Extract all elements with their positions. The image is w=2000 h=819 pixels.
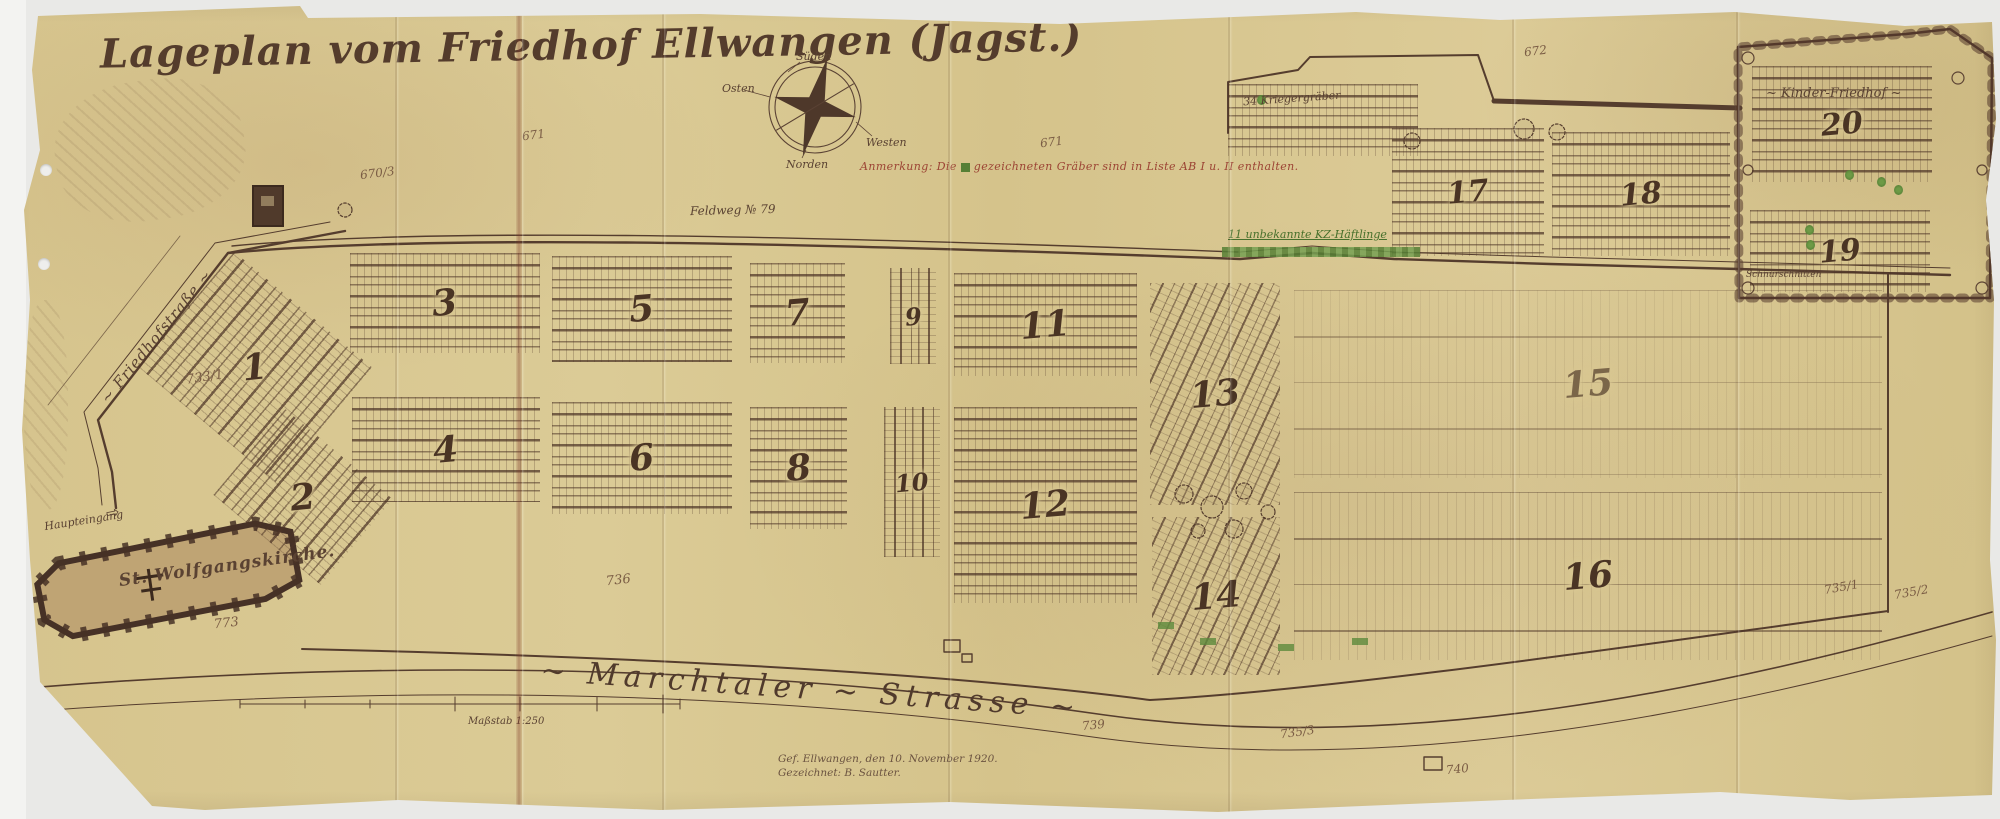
section-number: 16 (1561, 553, 1615, 599)
green-shrub (1806, 240, 1815, 250)
grave-section-7: 7 (750, 263, 845, 363)
section-number: 14 (1189, 573, 1243, 619)
green-shrub (1894, 185, 1903, 195)
note-prefix: Anmerkung: Die (860, 160, 957, 173)
grave-section-18: 18 (1552, 132, 1730, 256)
grave-section-9: 9 (890, 268, 936, 364)
scanned-map-page: 1 2 3 4 5 6 7 8 9 10 11 12 13 14 15 16 1… (0, 0, 2000, 819)
green-grave-mark (1158, 622, 1174, 629)
parcel-number: 739 (1081, 717, 1105, 733)
grave-section-20: 20 (1752, 66, 1932, 182)
signature-line2: Gezeichnet: B. Sautter. (778, 766, 998, 780)
section-number: 3 (431, 281, 460, 325)
section-number: 10 (894, 466, 930, 498)
section-number: 13 (1188, 371, 1242, 417)
grave-section-11: 11 (954, 273, 1137, 376)
grave-section-12: 12 (954, 407, 1137, 603)
parcel-number: 672 (1523, 43, 1547, 60)
kz-graves-label: 11 unbekannte KZ-Häftlinge (1228, 228, 1387, 241)
mortuary-building (253, 186, 283, 226)
grave-section-10: 10 (884, 407, 940, 557)
grave-section-14: 14 (1152, 517, 1280, 675)
signature-line1: Gef. Ellwangen, den 10. November 1920. (778, 752, 998, 766)
green-shrub (1805, 225, 1814, 235)
section-number: 6 (628, 436, 657, 480)
section-number: 5 (628, 287, 657, 331)
parcel-number: 671 (1039, 134, 1063, 151)
parcel-number: 671 (521, 127, 545, 144)
grave-section-16: 16 (1294, 492, 1882, 660)
compass-label-east: Osten (722, 82, 755, 95)
grave-section-13: 13 (1150, 283, 1280, 505)
section-number: 17 (1446, 173, 1491, 212)
kinder-friedhof-label: ~ Kinder-Friedhof ~ (1766, 86, 1901, 101)
section-number: 8 (784, 446, 813, 490)
section-number: 12 (1019, 482, 1073, 528)
compass-label-west: Westen (866, 136, 907, 149)
signature-block: Gef. Ellwangen, den 10. November 1920. G… (778, 752, 998, 780)
parcel-number: 773 (213, 615, 239, 633)
map-note: Anmerkung: Diegezeichneten Gräber sind i… (860, 160, 1299, 173)
parcel-number: 740 (1445, 761, 1469, 777)
section-number: 4 (432, 427, 461, 471)
kinder-friedhof-bottom-label: Schnurschnitten (1746, 270, 1821, 280)
section-number: 2 (288, 475, 317, 519)
compass-label-north: Norden (786, 158, 828, 171)
section-number: 15 (1561, 361, 1615, 407)
map-paper: 1 2 3 4 5 6 7 8 9 10 11 12 13 14 15 16 1… (0, 0, 2000, 819)
kz-graves-row (1222, 247, 1420, 257)
green-grave-mark (1278, 644, 1294, 651)
green-grave-mark (1200, 638, 1216, 645)
parcel-number: 736 (605, 572, 631, 590)
road-label-feldweg: Feldweg № 79 (690, 202, 776, 218)
green-grave-mark (1352, 638, 1368, 645)
grave-section-6: 6 (552, 402, 732, 514)
grave-section-4: 4 (352, 397, 540, 502)
section-number: 19 (1818, 232, 1863, 271)
grave-section-15: 15 (1294, 290, 1882, 478)
grave-section-5: 5 (552, 256, 732, 362)
section-number: 18 (1619, 175, 1664, 214)
green-shrub (1877, 177, 1886, 187)
section-number: 20 (1820, 105, 1865, 144)
scale-label: Maßstab 1:250 (468, 716, 544, 727)
compass-label-south: Süden (796, 50, 831, 63)
green-shrub (1845, 170, 1854, 180)
section-number: 7 (783, 291, 812, 335)
section-number: 9 (903, 301, 922, 331)
grave-section-8: 8 (750, 407, 847, 529)
green-grave-swatch-icon (961, 163, 970, 172)
section-number: 1 (240, 345, 269, 389)
grave-section-3: 3 (350, 253, 540, 353)
note-suffix: gezeichneten Gräber sind in Liste AB I u… (974, 160, 1299, 173)
section-number: 11 (1019, 301, 1073, 347)
